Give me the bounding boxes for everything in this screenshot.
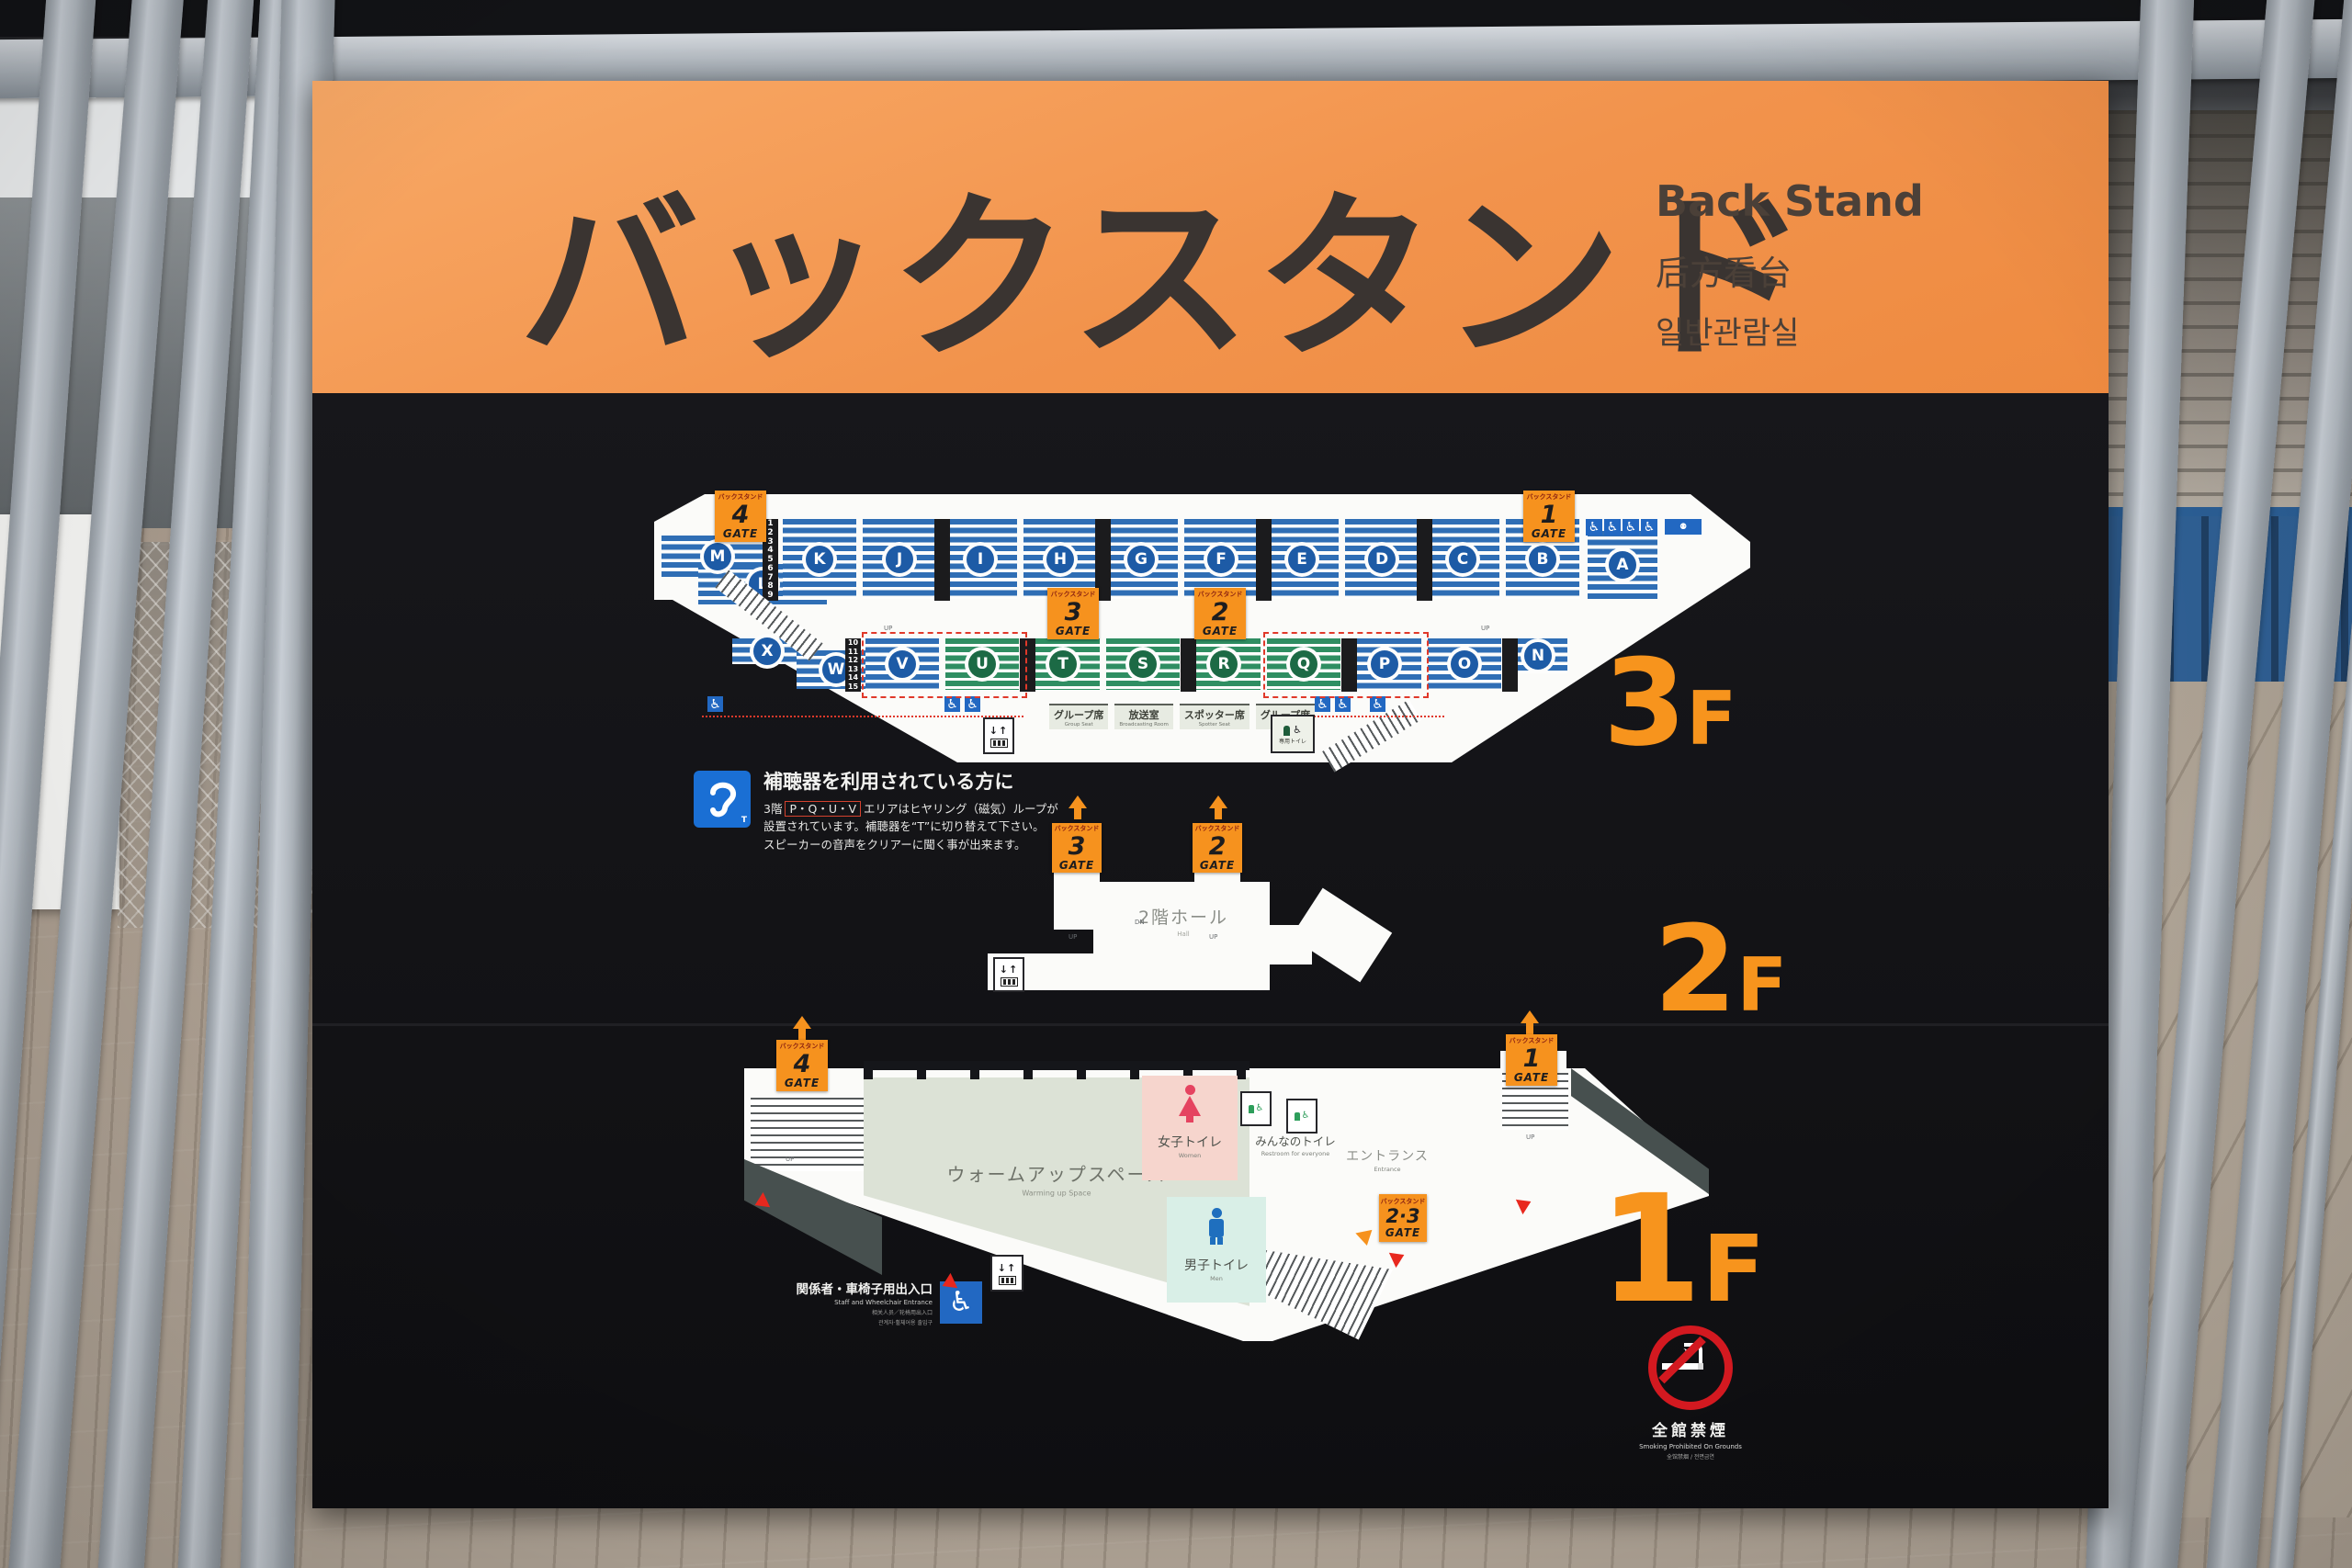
hearing-line1: 3階P・Q・U・Vエリアはヒヤリング（磁気）ループが bbox=[763, 800, 997, 818]
wheelchair-space-icon: ♿ bbox=[1315, 696, 1330, 712]
everyone-toilet-label: みんなのトイレ Restroom for everyone bbox=[1245, 1132, 1346, 1157]
row-number: 7 bbox=[767, 574, 773, 582]
dotted-guide-line bbox=[702, 716, 1023, 717]
elevator-icon: ↓↑ bbox=[993, 957, 1024, 992]
row-number: 14 bbox=[848, 674, 858, 682]
elevator-icon: ↓↑ bbox=[983, 717, 1014, 754]
gate-1-tag: バックスタンド 1 GATE bbox=[1506, 1034, 1557, 1086]
section-letter: O bbox=[1451, 650, 1478, 678]
section-letter: A bbox=[1609, 551, 1636, 579]
hall-label: 2階ホール Hall bbox=[1096, 904, 1271, 938]
row-number: 9 bbox=[767, 592, 773, 600]
sign-body: バックスタンド 4 GATE バックスタンド 1 GATE M L bbox=[312, 393, 2109, 1508]
women-toilet-room: 女子トイレ Women bbox=[1142, 1076, 1238, 1180]
facility-label: 放送室 Broadcasting Room bbox=[1114, 704, 1172, 729]
top-wall bbox=[864, 1061, 1249, 1070]
ear-glyph bbox=[700, 776, 744, 822]
wheelchair-space-icon: ♿ bbox=[1370, 696, 1385, 712]
section-letter: S bbox=[1129, 650, 1157, 678]
seat-section: A bbox=[1588, 531, 1657, 599]
facility-name-ja: スポッター席 bbox=[1184, 707, 1245, 722]
wheelchair-space-icon: ♿ bbox=[707, 696, 723, 712]
section-letter: R bbox=[1210, 650, 1238, 678]
man-icon bbox=[1209, 1208, 1224, 1245]
row-number: 15 bbox=[848, 683, 858, 691]
gate-4-tag: バックスタンド 4 GATE bbox=[776, 1040, 828, 1091]
floor3-label: 3F bbox=[1603, 643, 1736, 762]
no-smoking-notice: 全館禁煙 Smoking Prohibited On Grounds 全馆禁烟 … bbox=[1617, 1325, 1764, 1461]
row-number: 13 bbox=[848, 666, 858, 673]
gate-direction-arrow bbox=[1521, 1010, 1539, 1034]
wheelchair-space-icon: ♿ bbox=[1641, 519, 1657, 536]
wheelchair-space-icon: ♿ bbox=[1335, 696, 1351, 712]
wheelchair-space-icon: ♿ bbox=[1586, 519, 1602, 536]
no-smoking-icon bbox=[1648, 1325, 1733, 1410]
facility-name-en: Group Seat bbox=[1054, 722, 1103, 728]
row-number: 2 bbox=[767, 529, 773, 537]
private-toilet-box: ♿ 専用トイレ bbox=[1271, 715, 1315, 753]
hearing-title: 補聴器を利用されている方に bbox=[763, 767, 997, 795]
row-numbers-strip bbox=[1502, 638, 1518, 692]
gate-stand-label: バックスタンド bbox=[718, 494, 763, 501]
floor3-seating-map: バックスタンド 4 GATE バックスタンド 1 GATE M L bbox=[654, 494, 1750, 762]
hearing-loop-area-outline bbox=[862, 632, 1027, 698]
warmup-label-en: Warming up Space bbox=[947, 1190, 1167, 1198]
no-smoking-sub: 全馆禁烟 / 전면금연 bbox=[1617, 1452, 1764, 1461]
section-letter: J bbox=[886, 546, 913, 573]
entrance-label: エントランス Entrance bbox=[1337, 1146, 1438, 1173]
floor1-map: バックスタンド 4 GATE バックスタンド 1 GATE ウォームアップスペー… bbox=[730, 1047, 1709, 1341]
facility-name-ja: グループ席 bbox=[1054, 707, 1103, 722]
row-numbers-strip bbox=[1256, 519, 1272, 601]
wheelchair-icon: ♿ bbox=[1293, 724, 1302, 736]
stroller-parking-sign: ⚉ bbox=[1665, 519, 1702, 535]
row-number: 12 bbox=[848, 657, 858, 664]
panel-seam bbox=[312, 1023, 2109, 1026]
staff-entrance-label: 関係者・車椅子用出入口 Staff and Wheelchair Entranc… bbox=[786, 1279, 933, 1326]
row-number: 11 bbox=[848, 649, 858, 656]
men-toilet-room: 男子トイレ Men bbox=[1167, 1197, 1266, 1303]
section-letter: D bbox=[1368, 546, 1396, 573]
stairs bbox=[751, 1098, 865, 1171]
facility-label: グループ席 Group Seat bbox=[1049, 704, 1108, 729]
sign-title-japanese: バックスタンド bbox=[519, 189, 1813, 369]
hearing-aid-icon: T bbox=[694, 771, 751, 828]
facility-label: スポッター席 Spotter Seat bbox=[1180, 704, 1249, 729]
row-number: 5 bbox=[767, 556, 773, 564]
row-number: 4 bbox=[767, 547, 773, 555]
section-letter: X bbox=[753, 637, 781, 665]
floor1-label: 1F bbox=[1599, 1176, 1765, 1325]
section-letter: C bbox=[1449, 546, 1476, 573]
stadium-guide-sign: バックスタンド Back Stand 后方看台 일반관람실 バックスタンド 4 … bbox=[312, 81, 2109, 1508]
sign-title-korean: 일반관람실 bbox=[1656, 310, 1924, 358]
gate-2-3-tag: バックスタンド 2·3 GATE bbox=[1379, 1194, 1427, 1242]
sign-title-translations: Back Stand 后方看台 일반관람실 bbox=[1656, 169, 1924, 357]
gate-direction-arrow bbox=[1069, 795, 1087, 819]
section-letter: K bbox=[806, 546, 833, 573]
row-number: 10 bbox=[848, 639, 858, 647]
woman-icon bbox=[1179, 1085, 1201, 1122]
wheelchair-icon: ♿ bbox=[1256, 1104, 1264, 1113]
row-number: 1 bbox=[767, 520, 773, 528]
row-numbers-strip bbox=[934, 519, 950, 601]
wheelchair-space-icon: ♿ bbox=[1623, 519, 1639, 536]
everyone-toilet-icon-box: ♿ bbox=[1240, 1091, 1272, 1126]
gate-4-tag: バックスタンド 4 GATE bbox=[715, 491, 766, 542]
gate-word: GATE bbox=[1532, 528, 1566, 539]
gate-1-tag: バックスタンド 1 GATE bbox=[1523, 491, 1575, 542]
private-toilet-label: 専用トイレ bbox=[1279, 737, 1306, 745]
photo-scene: バックスタンド Back Stand 后方看台 일반관람실 バックスタンド 4 … bbox=[0, 0, 2352, 1568]
wheelchair-space-icon: ♿ bbox=[1604, 519, 1621, 536]
section-letter: F bbox=[1207, 546, 1235, 573]
row-number: 8 bbox=[767, 582, 773, 591]
no-smoking-en: Smoking Prohibited On Grounds bbox=[1617, 1443, 1764, 1450]
sign-title-english: Back Stand bbox=[1656, 169, 1924, 234]
hearing-areas: P・Q・U・V bbox=[785, 801, 861, 817]
gate-stand-label: バックスタンド bbox=[1527, 494, 1572, 501]
section-letter: G bbox=[1127, 546, 1155, 573]
gate-stand-label: バックスタンド bbox=[1051, 592, 1096, 598]
sign-header: バックスタンド Back Stand 后方看台 일반관람실 bbox=[312, 81, 2109, 393]
gate-number: 3 bbox=[1065, 600, 1082, 625]
warmup-label-ja: ウォームアップスペース bbox=[947, 1160, 1167, 1187]
gate-direction-arrow bbox=[1209, 795, 1227, 819]
floor2-label: 2F bbox=[1654, 909, 1787, 1029]
elevator-icon: ↓↑ bbox=[990, 1255, 1023, 1292]
section-letter: M bbox=[704, 543, 731, 570]
person-icon bbox=[1283, 726, 1290, 736]
wheelchair-icon: ♿ bbox=[1302, 1111, 1310, 1121]
stairs-up-label: UP bbox=[884, 625, 892, 632]
gate-word: GATE bbox=[1056, 626, 1091, 637]
hearing-line3: スピーカーの音声をクリアーに聞く事が出来ます。 bbox=[763, 836, 997, 853]
gate-stand-label: バックスタンド bbox=[1198, 592, 1243, 598]
stairs-up-label: UP bbox=[1481, 625, 1489, 632]
wheelchair-space-icon: ♿ bbox=[965, 696, 980, 712]
section-letter: B bbox=[1529, 546, 1556, 573]
facility-name-ja: 放送室 bbox=[1119, 707, 1168, 722]
everyone-toilet-icon-box: ♿ bbox=[1286, 1099, 1317, 1134]
gate-2-tag: バックスタンド 2 GATE bbox=[1194, 588, 1246, 639]
row-number: 6 bbox=[767, 565, 773, 573]
hearing-loop-area-outline bbox=[1263, 632, 1429, 698]
gate-3-tag: バックスタンド 3 GATE bbox=[1047, 588, 1099, 639]
gate-word: GATE bbox=[1203, 626, 1238, 637]
gate-2-tag: バックスタンド 2 GATE bbox=[1193, 823, 1242, 873]
hearing-line2: 設置されています。補聴器を“T”に切り替えて下さい。 bbox=[763, 818, 997, 835]
section-letter: I bbox=[967, 546, 994, 573]
no-smoking-ja: 全館禁煙 bbox=[1617, 1417, 1764, 1440]
row-numbers-strip bbox=[1181, 638, 1196, 692]
gate-word: GATE bbox=[723, 528, 758, 539]
gate-number: 1 bbox=[1541, 502, 1558, 527]
row-numbers-strip bbox=[1417, 519, 1432, 601]
gate-3-tag: バックスタンド 3 GATE bbox=[1052, 823, 1102, 873]
section-letter: N bbox=[1524, 642, 1552, 670]
gate-number: 2 bbox=[1212, 600, 1229, 625]
row-numbers-strip: 101112131415 bbox=[845, 638, 861, 692]
section-letter: H bbox=[1046, 546, 1074, 573]
facility-name-en: Broadcasting Room bbox=[1119, 722, 1168, 728]
stairs bbox=[1291, 888, 1392, 983]
section-letter: E bbox=[1288, 546, 1316, 573]
section-letter: T bbox=[1049, 650, 1077, 678]
gate-number: 4 bbox=[732, 502, 750, 527]
facility-name-en: Spotter Seat bbox=[1184, 722, 1245, 728]
floor2-map: バックスタンド 3 GATE バックスタンド 2 GATE ↓↑ bbox=[988, 816, 1419, 999]
hearing-aid-info: T 補聴器を利用されている方に 3階P・Q・U・Vエリアはヒヤリング（磁気）ルー… bbox=[694, 767, 997, 853]
row-number: 3 bbox=[767, 538, 773, 547]
wheelchair-space-icon: ♿ bbox=[944, 696, 960, 712]
sign-title-chinese: 后方看台 bbox=[1656, 247, 1924, 299]
gate-direction-arrow bbox=[793, 1016, 811, 1040]
